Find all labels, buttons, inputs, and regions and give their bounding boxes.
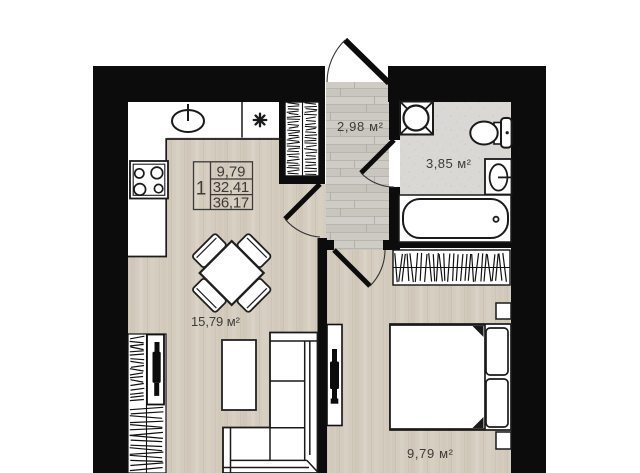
svg-text:3,85 м²: 3,85 м²	[426, 156, 472, 171]
svg-text:9,79 м²: 9,79 м²	[407, 446, 454, 461]
svg-text:2,98 м²: 2,98 м²	[337, 119, 384, 134]
svg-text:15,79 м²: 15,79 м²	[191, 314, 241, 329]
svg-text:1: 1	[196, 179, 207, 200]
svg-text:36,17: 36,17	[213, 194, 250, 211]
